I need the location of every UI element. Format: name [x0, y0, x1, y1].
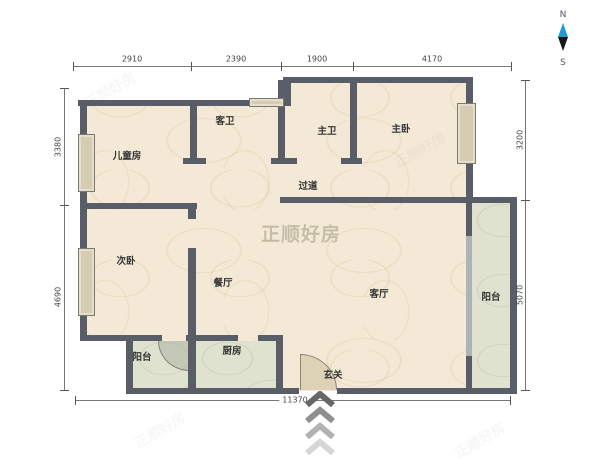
wall-children-right: [190, 103, 197, 161]
dim-label-top-1: 2910: [122, 55, 142, 64]
wall-masterbath-right: [350, 80, 357, 160]
wall-corridor-south: [280, 197, 473, 203]
room-label-second-bedroom: 次卧: [116, 253, 135, 267]
entrance-arrow-icon: [298, 391, 342, 455]
compass-south-label: S: [560, 58, 566, 68]
wall-balcony-left-side: [126, 335, 133, 394]
wall-cap-3: [341, 158, 362, 164]
dim-tick: [511, 62, 512, 71]
window-master-bedroom: [457, 103, 476, 164]
room-label-balcony-left: 阳台: [132, 349, 151, 363]
room-label-living-room: 客厅: [369, 286, 388, 300]
floorplan-canvas: 儿童房 客卫 主卫 主卧 过道 次卧 餐厅 客厅 阳台 阳台 厨房 玄关 291…: [0, 0, 600, 472]
watermark-faint: 正顺好房: [131, 407, 189, 452]
room-label-master-bathroom: 主卫: [317, 123, 336, 137]
wall-secondbed-right: [188, 248, 196, 341]
outline-cover-top-left: [0, 0, 283, 100]
wall-children-bottom: [82, 203, 197, 209]
dim-label-left-2: 4690: [54, 287, 63, 307]
dim-tick: [75, 396, 76, 405]
wall-cap-1: [183, 158, 206, 164]
dim-tick: [510, 396, 511, 405]
wall-secondbed-stub: [188, 203, 196, 219]
dim-label-top-3: 1900: [307, 55, 327, 64]
window-guest-bathroom: [249, 98, 284, 107]
room-label-corridor: 过道: [298, 178, 317, 192]
dim-tick: [521, 80, 530, 81]
wall-guestbath-right: [278, 80, 285, 160]
dim-label-top-2: 2390: [226, 55, 246, 64]
dim-tick: [60, 88, 69, 89]
dim-tick: [353, 62, 354, 71]
sliding-door-living-balcony: [466, 236, 472, 356]
dim-tick: [521, 200, 530, 201]
window-children-room: [78, 134, 95, 192]
wall-bottom-b: [337, 388, 517, 394]
wall-kitchen-left: [188, 335, 196, 394]
outline-cover-bottom-left: [0, 341, 126, 472]
dim-line-right: [525, 80, 526, 390]
watermark-faint: 正顺好房: [451, 417, 509, 462]
compass-needle-north-icon: [558, 23, 568, 37]
room-label-entry: 玄关: [323, 367, 342, 381]
room-label-master-bedroom: 主卧: [391, 121, 410, 135]
wall-top-right: [283, 77, 473, 83]
room-label-kitchen: 厨房: [222, 343, 241, 357]
compass-north-label: N: [560, 10, 567, 20]
watermark-text: 正顺好房: [261, 220, 341, 247]
room-label-balcony-right: 阳台: [481, 289, 500, 303]
window-second-bedroom: [78, 248, 95, 316]
dim-tick: [73, 62, 74, 71]
dim-label-left-1: 3380: [54, 137, 63, 157]
dim-line-top: [73, 66, 511, 67]
dim-tick: [281, 62, 282, 71]
dim-label-top-4: 4170: [422, 55, 442, 64]
compass: N S: [550, 10, 576, 68]
dim-tick: [60, 205, 69, 206]
wall-bottom-a: [126, 388, 299, 394]
dim-line-left: [64, 88, 65, 390]
dim-tick: [60, 390, 69, 391]
room-label-guest-bathroom: 客卫: [215, 113, 234, 127]
wall-secondbed-bottom: [80, 335, 162, 341]
room-label-children-room: 儿童房: [113, 148, 142, 162]
dim-label-right-1: 3200: [516, 130, 525, 150]
wall-cap-2: [271, 158, 297, 164]
compass-needle-south-icon: [558, 37, 568, 51]
room-label-dining-room: 餐厅: [213, 275, 232, 289]
dim-label-right-2: 5070: [516, 285, 525, 305]
wall-divider-stub-top: [466, 203, 472, 236]
wall-step: [284, 77, 291, 106]
dim-tick: [521, 390, 530, 391]
wall-divider-stub-bottom: [466, 356, 472, 388]
wall-kitchen-right: [276, 335, 283, 394]
dim-tick: [191, 62, 192, 71]
